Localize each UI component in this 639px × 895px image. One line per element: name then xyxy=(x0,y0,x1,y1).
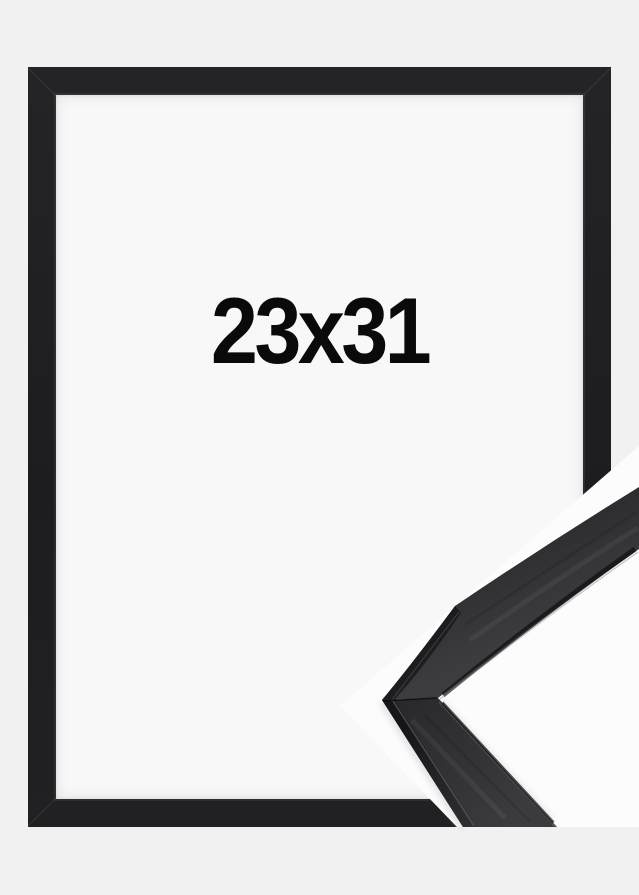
frame-size-label: 23x31 xyxy=(82,284,556,378)
miter-seam-top-left xyxy=(27,67,57,97)
frame-mat xyxy=(56,95,583,799)
miter-seam-top-right xyxy=(582,67,612,97)
miter-seam-bottom-left xyxy=(27,797,57,827)
product-image: 23x31 xyxy=(0,0,639,895)
